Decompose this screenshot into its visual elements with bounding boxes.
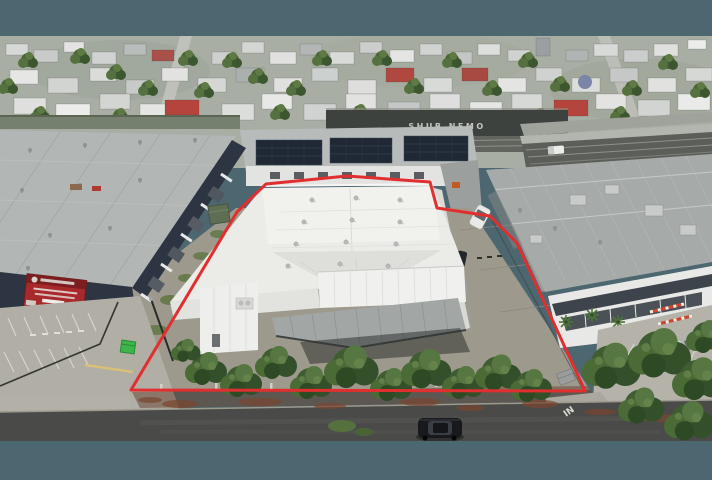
letterbox-bottom bbox=[0, 441, 712, 480]
house-red-roof bbox=[165, 100, 199, 115]
rooftop-unit bbox=[570, 195, 586, 205]
apartment-building bbox=[536, 38, 550, 56]
house bbox=[430, 94, 460, 109]
house bbox=[100, 94, 130, 109]
house bbox=[34, 50, 58, 62]
mossy-retaining-wall bbox=[0, 115, 240, 129]
house bbox=[152, 50, 174, 61]
house bbox=[610, 68, 638, 82]
solar-array bbox=[404, 136, 468, 161]
wall-logo-sign bbox=[452, 182, 460, 188]
house bbox=[566, 50, 588, 61]
house bbox=[390, 50, 414, 62]
rooftop-unit bbox=[680, 225, 696, 235]
house-red-roof bbox=[386, 68, 414, 82]
house bbox=[638, 100, 670, 116]
house bbox=[270, 52, 296, 64]
house bbox=[6, 44, 28, 55]
house bbox=[686, 68, 712, 81]
green-wheelie-bin bbox=[120, 340, 136, 354]
red-pallet-stack bbox=[92, 186, 101, 191]
ac-unit bbox=[236, 298, 253, 309]
green-container-shed bbox=[208, 204, 230, 225]
house bbox=[348, 80, 376, 94]
van bbox=[688, 40, 706, 49]
letterbox-top bbox=[0, 0, 712, 36]
house bbox=[420, 44, 442, 55]
jacaranda-tree bbox=[578, 75, 592, 89]
black-suv bbox=[416, 418, 464, 442]
house bbox=[498, 78, 526, 92]
house bbox=[92, 52, 116, 64]
house bbox=[654, 44, 678, 56]
house bbox=[624, 50, 648, 62]
house bbox=[648, 78, 676, 92]
palm-tree bbox=[559, 315, 573, 329]
house bbox=[48, 78, 78, 93]
annex-building bbox=[200, 282, 258, 354]
ac-fan bbox=[246, 301, 251, 306]
house bbox=[478, 44, 500, 55]
house bbox=[124, 44, 146, 55]
photo-content: SHUB NEMO bbox=[0, 32, 712, 442]
house bbox=[512, 94, 542, 109]
rooftop-unit bbox=[530, 235, 542, 243]
house bbox=[424, 78, 452, 92]
annex-door bbox=[212, 334, 220, 347]
ac-fan bbox=[239, 301, 244, 306]
house bbox=[360, 42, 382, 53]
road-wear-strip bbox=[160, 430, 660, 434]
solar-array bbox=[330, 138, 392, 163]
grass-tuft bbox=[328, 420, 356, 432]
rooftop-unit bbox=[605, 185, 619, 194]
rooftop-unit bbox=[645, 205, 663, 216]
suv-roof bbox=[433, 423, 448, 433]
house-red-roof bbox=[462, 68, 488, 81]
suv-wheel bbox=[452, 436, 457, 441]
suv-wheel bbox=[423, 436, 428, 441]
house bbox=[242, 42, 264, 53]
white-ute bbox=[548, 145, 565, 154]
house bbox=[162, 68, 188, 81]
aerial-photo: SHUB NEMO bbox=[0, 0, 712, 480]
solar-array bbox=[256, 140, 322, 165]
house bbox=[312, 68, 338, 81]
street-light-head bbox=[149, 297, 153, 301]
house bbox=[10, 70, 38, 84]
house bbox=[594, 44, 618, 56]
palm-tree bbox=[585, 308, 599, 322]
annex-roof bbox=[200, 282, 258, 354]
photo-canvas: SHUB NEMO bbox=[0, 0, 712, 480]
grass-tuft bbox=[355, 428, 373, 436]
house bbox=[330, 52, 354, 64]
pallet-stack bbox=[70, 184, 82, 190]
